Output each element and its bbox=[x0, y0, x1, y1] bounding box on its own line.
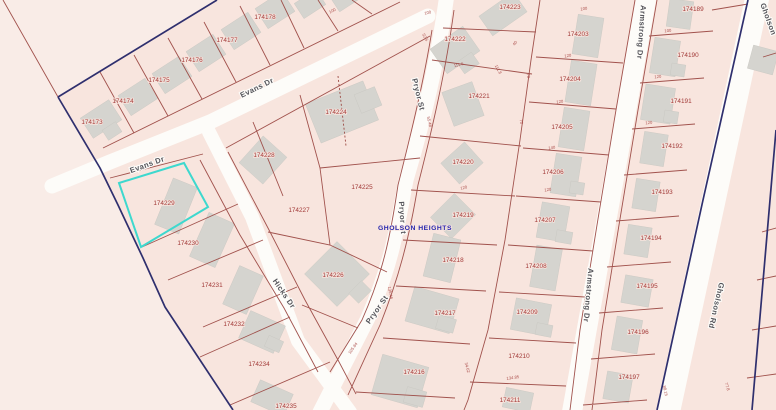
parcel-label-174175[interactable]: 174175 bbox=[148, 77, 170, 84]
dimension-label: 120 bbox=[544, 186, 552, 192]
parcel-label-174221[interactable]: 174221 bbox=[468, 93, 490, 100]
parcel-label-174197[interactable]: 174197 bbox=[618, 374, 640, 381]
parcel-label-174218[interactable]: 174218 bbox=[442, 257, 464, 264]
building-footprint bbox=[666, 0, 694, 30]
parcel-label-174195[interactable]: 174195 bbox=[636, 283, 658, 290]
parcel-label-174196[interactable]: 174196 bbox=[627, 329, 649, 336]
parcel-label-174207[interactable]: 174207 bbox=[534, 217, 556, 224]
building-footprint bbox=[569, 181, 585, 195]
parcel-label-174190[interactable]: 174190 bbox=[677, 52, 699, 59]
parcel-label-174177[interactable]: 174177 bbox=[216, 37, 238, 44]
dimension-label: 100 bbox=[580, 5, 588, 11]
building-footprint bbox=[555, 230, 573, 245]
parcel-label-174228[interactable]: 174228 bbox=[253, 152, 275, 159]
parcel-map-canvas[interactable]: Evans DrEvans DrPryor StPryor StPryor St… bbox=[0, 0, 776, 410]
building-footprint bbox=[621, 275, 653, 307]
building-footprint bbox=[663, 110, 679, 124]
parcel-label-174217[interactable]: 174217 bbox=[434, 310, 456, 317]
parcel-label-174230[interactable]: 174230 bbox=[177, 240, 199, 247]
parcel-label-174232[interactable]: 174232 bbox=[223, 321, 245, 328]
parcel-label-174222[interactable]: 174222 bbox=[444, 36, 466, 43]
parcel-label-174220[interactable]: 174220 bbox=[452, 159, 474, 166]
parcel-label-174203[interactable]: 174203 bbox=[567, 31, 589, 38]
parcel-label-174234[interactable]: 174234 bbox=[248, 361, 270, 368]
parcel-label-174211[interactable]: 174211 bbox=[500, 397, 521, 404]
parcel-label-174176[interactable]: 174176 bbox=[181, 57, 203, 64]
parcel-label-174210[interactable]: 174210 bbox=[508, 353, 530, 360]
parcel-label-174226[interactable]: 174226 bbox=[322, 272, 344, 279]
dimension-label: 120 bbox=[645, 120, 653, 126]
parcel-label-174191[interactable]: 174191 bbox=[670, 98, 692, 105]
parcel-label-174231[interactable]: 174231 bbox=[201, 282, 223, 289]
parcel-label-174219[interactable]: 174219 bbox=[452, 212, 474, 219]
building-footprint bbox=[670, 63, 686, 77]
dimension-label: 120 bbox=[556, 98, 564, 104]
parcel-label-174223[interactable]: 174223 bbox=[499, 4, 521, 11]
parcel-label-174208[interactable]: 174208 bbox=[525, 263, 547, 270]
dimension-label: 140 bbox=[548, 144, 556, 150]
parcel-label-174205[interactable]: 174205 bbox=[551, 124, 573, 131]
parcel-label-174173[interactable]: 174173 bbox=[81, 119, 103, 126]
parcel-label-174235[interactable]: 174235 bbox=[275, 403, 297, 410]
subdivision-name-label: GHOLSON HEIGHTS bbox=[378, 225, 452, 232]
map-svg[interactable]: Evans DrEvans DrPryor StPryor StPryor St… bbox=[0, 0, 776, 410]
parcel-label-174224[interactable]: 174224 bbox=[325, 109, 347, 116]
parcel-label-174192[interactable]: 174192 bbox=[661, 143, 683, 150]
parcel-label-174206[interactable]: 174206 bbox=[542, 169, 564, 176]
dimension-label: 120 bbox=[654, 74, 662, 80]
parcel-label-174178[interactable]: 174178 bbox=[254, 14, 276, 21]
dimension-label: 100 bbox=[664, 28, 672, 34]
parcel-label-174229[interactable]: 174229 bbox=[153, 200, 175, 207]
parcel-label-174189[interactable]: 174189 bbox=[682, 6, 704, 13]
parcel-label-174216[interactable]: 174216 bbox=[403, 369, 425, 376]
parcel-label-174227[interactable]: 174227 bbox=[288, 207, 310, 214]
parcel-label-174209[interactable]: 174209 bbox=[516, 309, 538, 316]
parcel-label-174194[interactable]: 174194 bbox=[640, 235, 662, 242]
parcel-label-174204[interactable]: 174204 bbox=[559, 76, 581, 83]
parcel-label-174174[interactable]: 174174 bbox=[112, 98, 134, 105]
dimension-label: 120 bbox=[564, 52, 572, 58]
parcel-label-174225[interactable]: 174225 bbox=[351, 184, 373, 191]
parcel-label-174193[interactable]: 174193 bbox=[651, 189, 673, 196]
